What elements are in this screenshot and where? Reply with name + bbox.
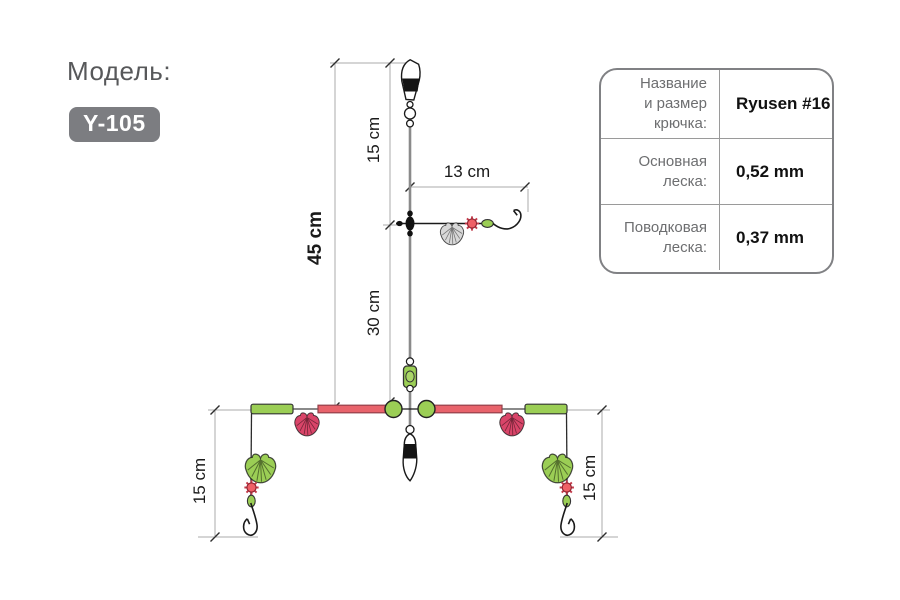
green-bead-left bbox=[385, 401, 402, 418]
left-dropper bbox=[244, 414, 276, 536]
green-shell-left-icon bbox=[245, 454, 275, 483]
red-flower-bead-icon bbox=[560, 480, 574, 494]
rig-diagram bbox=[0, 0, 900, 600]
center-clip-icon bbox=[404, 358, 417, 392]
green-tube-left bbox=[251, 404, 293, 414]
green-oval-bead bbox=[482, 220, 494, 228]
branch-leader bbox=[396, 210, 521, 245]
red-shell-right-icon bbox=[500, 413, 524, 436]
dim-label-branch-13cm: 13 cm bbox=[444, 162, 490, 182]
hook-icon bbox=[493, 210, 521, 229]
red-flower-bead-icon bbox=[465, 216, 479, 230]
red-flower-bead-icon bbox=[244, 480, 258, 494]
red-tube-right bbox=[434, 405, 502, 413]
dim-label-total-45cm: 45 cm bbox=[305, 211, 327, 265]
green-tube-right bbox=[525, 404, 567, 414]
dim-label-top-15cm: 15 cm bbox=[364, 117, 384, 163]
bottom-snap-icon bbox=[403, 426, 417, 481]
green-bead-right bbox=[418, 401, 435, 418]
gray-shell-icon bbox=[440, 223, 463, 245]
dim-label-left-15cm: 15 cm bbox=[190, 458, 210, 504]
dim-label-middle-30cm: 30 cm bbox=[364, 290, 384, 336]
top-snap-swivel-icon bbox=[402, 60, 421, 127]
dim-label-right-15cm: 15 cm bbox=[580, 455, 600, 501]
red-tube-left bbox=[318, 405, 386, 413]
fishing-rig-page: Модель: Y-105 Название и размер крючка: … bbox=[0, 0, 900, 600]
green-shell-right-icon bbox=[542, 454, 572, 483]
hook-icon bbox=[244, 503, 258, 535]
hook-icon bbox=[561, 503, 575, 535]
red-shell-left-icon bbox=[295, 413, 319, 436]
right-dropper bbox=[542, 414, 574, 536]
